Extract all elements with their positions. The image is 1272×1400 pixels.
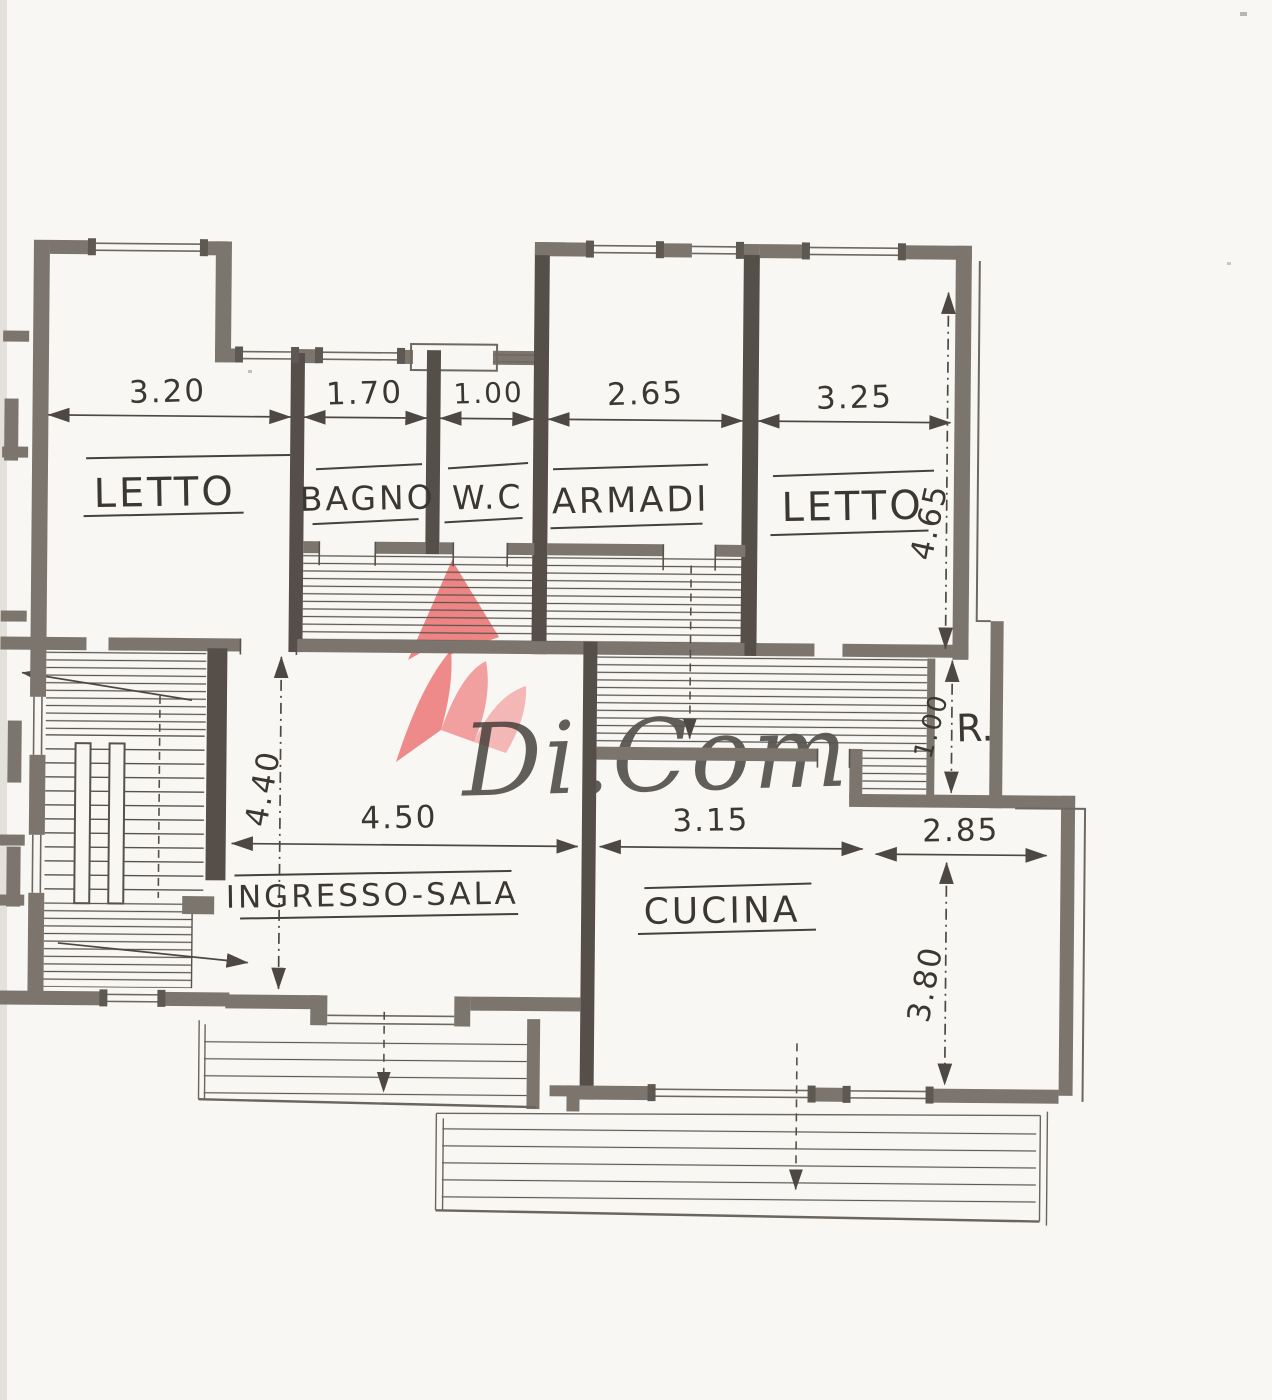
balcony-west-hatch — [204, 1026, 528, 1101]
dim-label-bagno-width: 1.70 — [326, 375, 404, 413]
corridor-hatch-east — [597, 655, 928, 750]
dim-label-hall-width: 4.50 — [360, 799, 438, 836]
dim-label-armadi-width: 2.65 — [607, 375, 685, 413]
dim-label-letto-left-width: 3.20 — [129, 373, 207, 411]
dim-label-letto-right-width: 3.25 — [816, 379, 894, 417]
room-label-armadi: ARMADI — [552, 480, 710, 523]
stairwell-hatch-upper — [46, 651, 207, 734]
scan-edge-shadow — [0, 0, 7, 1400]
dim-line-bagno — [304, 417, 426, 418]
dim-label-kitchen-east-width: 2.85 — [922, 812, 1000, 849]
room-label-ingresso-sala: INGRESSO-SALA — [226, 876, 519, 916]
stair-railing — [74, 743, 90, 903]
room-label-letto-left: LETTO — [93, 469, 236, 517]
room-label-wc: W.C — [452, 477, 524, 517]
room-label-cucina: CUCINA — [643, 890, 800, 933]
room-label-letto-right: LETTO — [781, 483, 924, 531]
dim-label-kitchen-width: 3.15 — [672, 802, 750, 839]
stair-railing — [108, 743, 124, 903]
dim-line-wc — [440, 418, 533, 419]
floor-plan-canvas: Di.Com — [0, 0, 1272, 1400]
corridor-hatch-west — [303, 553, 746, 645]
room-label-ripostiglio: R. — [956, 705, 994, 750]
dim-label-wc-width: 1.00 — [453, 376, 524, 411]
room-label-bagno: BAGNO — [299, 477, 436, 518]
scanned-floor-plan-page: Di.Com — [0, 0, 1272, 1400]
balcony-south-hatch — [442, 1118, 1037, 1211]
